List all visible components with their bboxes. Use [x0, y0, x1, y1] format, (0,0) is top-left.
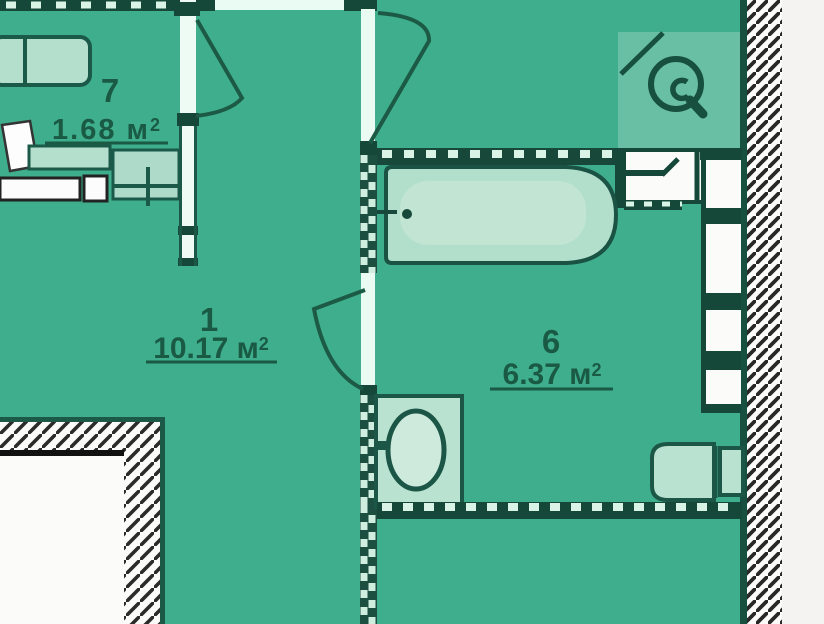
- svg-text:6.37 м2: 6.37 м2: [503, 358, 602, 391]
- svg-text:10.17 м2: 10.17 м2: [153, 332, 269, 365]
- svg-text:7: 7: [101, 72, 119, 109]
- svg-text:6: 6: [542, 323, 560, 360]
- svg-text:1.68 м2: 1.68 м2: [52, 114, 162, 146]
